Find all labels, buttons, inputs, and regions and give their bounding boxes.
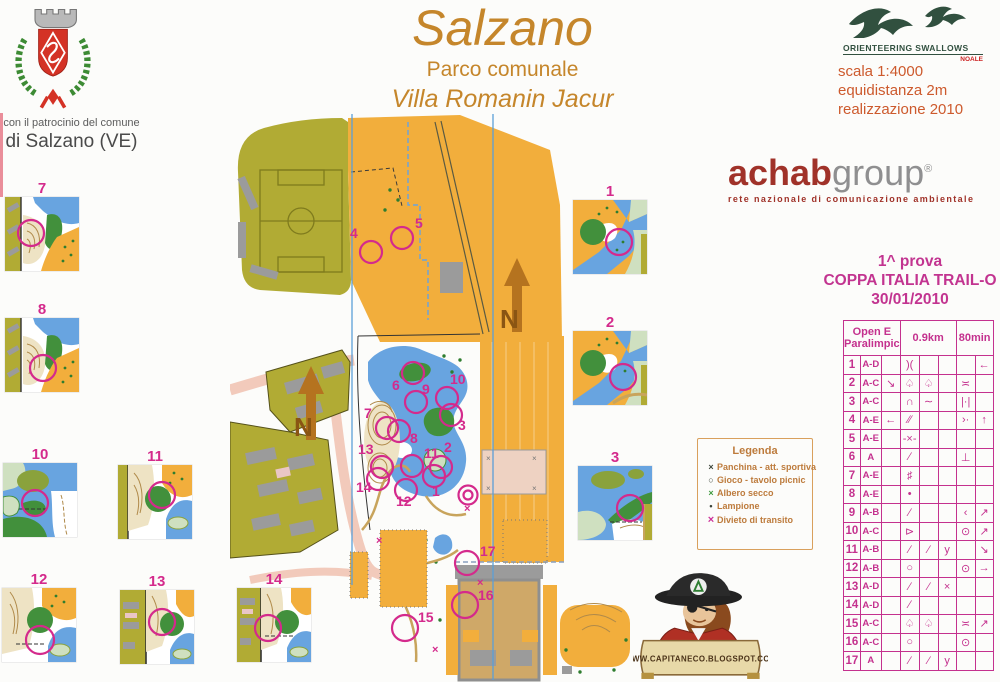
map-tile-11: 11: [117, 449, 193, 539]
control-cell: [881, 559, 900, 578]
svg-text:N: N: [500, 304, 519, 334]
svg-text:2: 2: [444, 439, 452, 455]
tile-number: 12: [1, 572, 77, 588]
tile-number: 13: [119, 574, 195, 590]
control-row: 7A-E♯: [844, 467, 994, 486]
header-length: 0.9km: [900, 321, 956, 356]
svg-text:11: 11: [424, 445, 439, 461]
control-row: 12A-B○⊙→: [844, 559, 994, 578]
small-pond: [433, 534, 452, 554]
svg-text:5: 5: [415, 215, 423, 231]
control-row: 15A-C♤♤≍↗: [844, 615, 994, 634]
control-cell: ↑: [975, 411, 993, 430]
svg-text:14: 14: [356, 479, 372, 495]
control-cell: [975, 596, 993, 615]
svg-text:16: 16: [478, 587, 494, 603]
control-cell: ‹: [956, 504, 975, 523]
laurel-left: [19, 37, 35, 93]
tile-number: 8: [4, 302, 80, 318]
control-cell: ↗: [975, 615, 993, 634]
control-cell: A-C: [860, 374, 881, 393]
control-cell: ∕: [919, 541, 938, 560]
legend-title: Legenda: [698, 445, 812, 457]
no-transit-icon: ×: [705, 514, 717, 526]
control-cell: ∕: [900, 504, 919, 523]
capitan-eco-mascot: WWW.CAPITANECO.BLOGSPOT.COM: [633, 568, 768, 680]
tile-map-image: [3, 463, 77, 537]
control-cell: •: [900, 485, 919, 504]
control-cell: ∕∕: [900, 411, 919, 430]
control-cell: ↘: [975, 541, 993, 560]
control-cell: [881, 356, 900, 375]
island: [424, 408, 454, 436]
control-cell: [881, 615, 900, 634]
control-cell: [919, 504, 938, 523]
control-cell: [881, 467, 900, 486]
control-cell: ∕: [900, 541, 919, 560]
control-cell: [938, 596, 956, 615]
map-tile-7: 7: [4, 181, 80, 271]
control-cell: ∩: [900, 393, 919, 412]
control-cell: ›·: [956, 411, 975, 430]
control-cell: A-D: [860, 356, 881, 375]
control-cell: A-C: [860, 522, 881, 541]
event-heading: 1^ prova COPPA ITALIA TRAIL-O 30/01/2010: [815, 252, 1000, 309]
control-cell: [881, 504, 900, 523]
control-row: 8A-E•: [844, 485, 994, 504]
control-cell: ♯: [900, 467, 919, 486]
control-cell: y: [938, 652, 956, 671]
control-cell: 2: [844, 374, 861, 393]
svg-text:×: ×: [532, 454, 537, 463]
map-tile-10: 10: [2, 447, 78, 537]
control-cell: ∕: [919, 578, 938, 597]
sponsor-brand-gray: group: [832, 152, 924, 193]
tile-map-image: [5, 318, 79, 392]
control-cell: ≍: [956, 615, 975, 634]
control-cell: ←: [881, 411, 900, 430]
control-cell: A: [860, 448, 881, 467]
control-cell: 13: [844, 578, 861, 597]
control-cell: ↗: [975, 522, 993, 541]
map-tile-2: 2: [572, 315, 648, 405]
header-class: Open E Paralimpic: [844, 321, 901, 356]
control-cell: [881, 578, 900, 597]
control-cell: [881, 522, 900, 541]
control-cell: |·|: [956, 393, 975, 412]
control-cell: A-C: [860, 393, 881, 412]
map-scale: scala 1:4000: [838, 62, 963, 81]
map-info-block: scala 1:4000 equidistanza 2m realizzazio…: [838, 62, 963, 119]
page-title: Salzano: [330, 0, 675, 56]
legend-item: × Panchina - att. sportiva: [698, 462, 812, 475]
control-cell: [881, 596, 900, 615]
control-cell: -×-: [900, 430, 919, 449]
tile-map-image: [573, 331, 647, 405]
svg-text:10: 10: [450, 371, 466, 387]
title-subtitle-1: Parco comunale: [330, 58, 675, 82]
control-cell: [919, 485, 938, 504]
picnic-icon: ○: [705, 475, 717, 485]
control-cell: A-D: [860, 596, 881, 615]
control-cell: ♤: [919, 615, 938, 634]
control-cell: ♤: [919, 374, 938, 393]
control-cell: 11: [844, 541, 861, 560]
control-row: 9A-B∕‹↗: [844, 504, 994, 523]
control-cell: A-B: [860, 504, 881, 523]
svg-text:15: 15: [418, 609, 434, 625]
control-table-body: 1A-D)(←2A-C↘♤♤≍3A-C∩∼|·|4A-E←∕∕›·↑5A-E-×…: [844, 356, 994, 671]
crown-icon: [35, 10, 76, 28]
control-cell: [881, 393, 900, 412]
control-cell: ⊥: [956, 448, 975, 467]
tile-number: 11: [117, 449, 193, 465]
bench-icon: ×: [705, 462, 717, 472]
control-cell: 7: [844, 467, 861, 486]
control-cell: [938, 448, 956, 467]
control-cell: [956, 596, 975, 615]
legend-item: × Albero secco: [698, 488, 812, 501]
finish-symbol: [459, 486, 478, 505]
svg-text:×: ×: [432, 644, 438, 656]
svg-text:×: ×: [376, 535, 382, 547]
control-cell: ⊙: [956, 559, 975, 578]
control-row: 1A-D)(←: [844, 356, 994, 375]
control-cell: [881, 652, 900, 671]
tile-map-image: [120, 590, 194, 664]
control-cell: [975, 448, 993, 467]
control-cell: 14: [844, 596, 861, 615]
legend-item: • Lampione: [698, 501, 812, 514]
control-cell: [881, 633, 900, 652]
laurel-right: [71, 37, 87, 93]
control-cell: [938, 393, 956, 412]
control-cell: [881, 430, 900, 449]
map-realization: realizzazione 2010: [838, 100, 963, 119]
control-row: 16A-C○⊙: [844, 633, 994, 652]
mascot-url: WWW.CAPITANECO.BLOGSPOT.COM: [633, 654, 768, 663]
lawn: [503, 520, 547, 563]
tile-map-image: [237, 588, 311, 662]
control-cell: [919, 356, 938, 375]
control-cell: A-C: [860, 615, 881, 634]
svg-text:×: ×: [532, 484, 537, 493]
scanned-map-page: con il patrocinio del comune di Salzano …: [0, 0, 1000, 682]
control-row: 11A-B∕∕y↘: [844, 541, 994, 560]
stand-building: [238, 222, 246, 258]
control-cell: ↗: [975, 504, 993, 523]
tile-map-image: [573, 200, 647, 274]
registered-mark-icon: ®: [924, 163, 932, 175]
svg-text:8: 8: [410, 430, 418, 446]
control-cell: [956, 467, 975, 486]
event-date: 30/01/2010: [815, 290, 1000, 309]
dead-tree-icon: ×: [705, 488, 717, 498]
control-cell: A-C: [860, 633, 881, 652]
map-tile-1: 1: [572, 184, 648, 274]
control-cell: [919, 430, 938, 449]
control-cell: [938, 559, 956, 578]
swallows-icon: [843, 2, 973, 38]
villa-buildings: [446, 565, 557, 680]
tile-map-image: [2, 588, 76, 662]
control-cell: [938, 374, 956, 393]
tile-number: 14: [236, 572, 312, 588]
control-cell: ×: [938, 578, 956, 597]
event-round: 1^ prova: [815, 252, 1000, 271]
control-cell: ∕: [900, 596, 919, 615]
map-tile-13: 13: [119, 574, 195, 664]
control-cell: A-E: [860, 430, 881, 449]
svg-text:1: 1: [432, 483, 440, 499]
control-cell: [919, 448, 938, 467]
patronage-text: con il patrocinio del comune di Salzano …: [0, 117, 159, 153]
svg-text:N: N: [294, 412, 313, 442]
control-cell: ↘: [881, 374, 900, 393]
svg-text:3: 3: [458, 417, 466, 433]
sponsor-logo: achabgroup® rete nazionale di comunicazi…: [728, 150, 988, 204]
control-cell: [956, 485, 975, 504]
control-cell: [919, 522, 938, 541]
control-cell: [938, 522, 956, 541]
control-cell: ♤: [900, 374, 919, 393]
control-cell: 1: [844, 356, 861, 375]
map-tile-3: 3: [577, 450, 653, 540]
control-row: 17A∕∕y: [844, 652, 994, 671]
club-name: ORIENTEERING SWALLOWS: [843, 43, 983, 55]
control-cell: [975, 430, 993, 449]
tile-map-image: [578, 466, 652, 540]
map-tile-14: 14: [236, 572, 312, 662]
control-cell: [919, 467, 938, 486]
control-cell: ≍: [956, 374, 975, 393]
control-cell: 5: [844, 430, 861, 449]
svg-text:7: 7: [364, 405, 372, 421]
control-cell: [975, 633, 993, 652]
control-cell: →: [975, 559, 993, 578]
control-cell: ⊙: [956, 522, 975, 541]
control-cell: 12: [844, 559, 861, 578]
control-cell: ∕: [919, 652, 938, 671]
svg-text:×: ×: [486, 484, 491, 493]
control-cell: 6: [844, 448, 861, 467]
tile-number: 10: [2, 447, 78, 463]
control-row: 13A-D∕∕×: [844, 578, 994, 597]
table-header-row: Open E Paralimpic 0.9km 80min: [844, 321, 994, 356]
control-cell: [975, 578, 993, 597]
control-cell: [938, 485, 956, 504]
control-cell: [881, 448, 900, 467]
sponsor-tagline: rete nazionale di comunicazione ambienta…: [728, 194, 988, 204]
tile-map-image: [118, 465, 192, 539]
map-tile-12: 12: [1, 572, 77, 662]
control-description-table: Open E Paralimpic 0.9km 80min 1A-D)(←2A-…: [843, 320, 994, 671]
control-cell: A-E: [860, 411, 881, 430]
control-cell: A-E: [860, 485, 881, 504]
svg-text:6: 6: [392, 377, 400, 393]
legend-item: ○ Gioco - tavolo picnic: [698, 475, 812, 488]
control-cell: [975, 393, 993, 412]
control-cell: [881, 541, 900, 560]
control-cell: 8: [844, 485, 861, 504]
control-cell: [938, 467, 956, 486]
svg-text:17: 17: [480, 543, 496, 559]
map-tile-8: 8: [4, 302, 80, 392]
control-cell: [919, 411, 938, 430]
control-cell: 10: [844, 522, 861, 541]
control-cell: 4: [844, 411, 861, 430]
control-cell: ⊙: [956, 633, 975, 652]
control-cell: ←: [975, 356, 993, 375]
control-row: 10A-C⊳⊙↗: [844, 522, 994, 541]
control-cell: ∕: [900, 448, 919, 467]
control-row: 5A-E-×-: [844, 430, 994, 449]
ribbon: [48, 89, 59, 105]
control-cell: ♤: [900, 615, 919, 634]
patronage-line2: di Salzano (VE): [0, 131, 159, 153]
control-cell: [919, 596, 938, 615]
garden: [560, 603, 630, 674]
tile-number: 3: [577, 450, 653, 466]
patronage-line1: con il patrocinio del comune: [0, 117, 159, 129]
control-cell: ○: [900, 633, 919, 652]
control-cell: A-B: [860, 541, 881, 560]
control-cell: [975, 485, 993, 504]
control-row: 2A-C↘♤♤≍: [844, 374, 994, 393]
open-land: [348, 115, 562, 342]
tile-number: 2: [572, 315, 648, 331]
lawn: [350, 552, 368, 598]
control-cell: [956, 541, 975, 560]
control-cell: [919, 633, 938, 652]
control-cell: [881, 485, 900, 504]
legend-item: × Divieto di transito: [698, 514, 812, 529]
control-cell: [938, 504, 956, 523]
control-cell: 15: [844, 615, 861, 634]
lawn: [380, 530, 427, 607]
control-cell: 3: [844, 393, 861, 412]
tile-number: 7: [4, 181, 80, 197]
control-row: 4A-E←∕∕›·↑: [844, 411, 994, 430]
svg-text:4: 4: [350, 225, 358, 241]
control-cell: ○: [900, 559, 919, 578]
control-cell: )(: [900, 356, 919, 375]
control-cell: 9: [844, 504, 861, 523]
control-cell: [956, 652, 975, 671]
building: [440, 262, 463, 293]
svg-text:13: 13: [358, 441, 374, 457]
control-cell: [956, 430, 975, 449]
svg-text:9: 9: [422, 381, 430, 397]
header-time: 80min: [956, 321, 993, 356]
control-cell: ∕: [900, 652, 919, 671]
control-cell: [919, 559, 938, 578]
tile-map-image: [5, 197, 79, 271]
control-cell: y: [938, 541, 956, 560]
control-cell: [956, 578, 975, 597]
control-cell: [975, 374, 993, 393]
svg-text:12: 12: [396, 493, 412, 509]
sponsor-brand-red: achab: [728, 152, 832, 193]
control-cell: A-B: [860, 559, 881, 578]
control-cell: [938, 633, 956, 652]
control-cell: 16: [844, 633, 861, 652]
salzano-coat-of-arms: [8, 0, 98, 118]
svg-text:×: ×: [486, 454, 491, 463]
control-cell: [956, 356, 975, 375]
control-cell: A-E: [860, 467, 881, 486]
control-row: 14A-D∕: [844, 596, 994, 615]
control-cell: ∕: [900, 578, 919, 597]
control-cell: A: [860, 652, 881, 671]
lamp-icon: •: [705, 501, 717, 511]
legend-box: Legenda × Panchina - att. sportiva ○ Gio…: [697, 438, 813, 550]
control-cell: [975, 652, 993, 671]
tile-number: 1: [572, 184, 648, 200]
control-cell: [938, 615, 956, 634]
control-cell: [938, 411, 956, 430]
control-cell: ∼: [919, 393, 938, 412]
map-title-block: Salzano Parco comunale Villa Romanin Jac…: [330, 0, 675, 114]
control-row: 3A-C∩∼|·|: [844, 393, 994, 412]
map-equidistance: equidistanza 2m: [838, 81, 963, 100]
control-cell: [938, 430, 956, 449]
control-cell: A-D: [860, 578, 881, 597]
control-cell: 17: [844, 652, 861, 671]
control-cell: [938, 356, 956, 375]
control-row: 6A∕⊥: [844, 448, 994, 467]
club-logo: ORIENTEERING SWALLOWS NOALE: [843, 2, 983, 63]
control-cell: [975, 467, 993, 486]
event-name: COPPA ITALIA TRAIL-O: [815, 271, 1000, 290]
control-cell: ⊳: [900, 522, 919, 541]
sponsor-brand: achabgroup®: [728, 150, 988, 192]
